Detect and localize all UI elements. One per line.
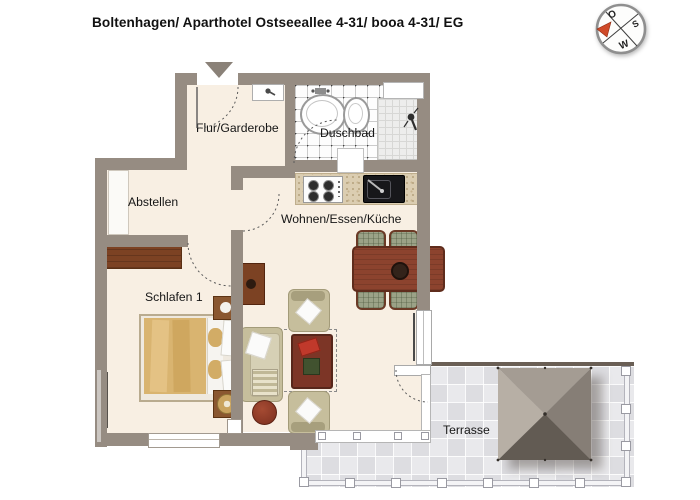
blanket-fold <box>150 320 170 393</box>
compass-east-label: O <box>607 8 619 21</box>
wall <box>175 73 187 170</box>
bedroom-door-gap <box>188 235 231 247</box>
curtain-rail <box>413 313 415 361</box>
room-label-wohnen: Wohnen/Essen/Küche <box>281 212 401 226</box>
storage-closet <box>108 170 129 235</box>
railing-post <box>575 478 585 488</box>
bed <box>139 314 236 402</box>
armchair <box>288 289 330 332</box>
cabinet-knob <box>246 279 256 289</box>
frame-post <box>421 432 429 440</box>
wall-junction <box>227 419 242 434</box>
bathroom-shelf <box>383 82 424 99</box>
railing-post <box>621 441 631 451</box>
hall-floor-lower <box>187 166 231 235</box>
frame-post <box>353 432 361 440</box>
bathroom-sink-basin <box>306 100 338 127</box>
compass-rose: O S W <box>597 5 645 53</box>
armchair-pillow <box>295 298 322 325</box>
burner <box>323 191 334 202</box>
armchair <box>288 391 330 434</box>
bathroom-door <box>337 148 364 173</box>
window-mullion <box>423 311 424 364</box>
armchair-pillow <box>295 397 322 424</box>
floor-plan: Boltenhagen/ Aparthotel Ostseeallee 4-31… <box>0 0 700 500</box>
railing-post <box>299 477 309 487</box>
wall <box>231 230 243 433</box>
railing-post <box>621 477 631 487</box>
dining-table <box>352 246 445 292</box>
wall <box>362 160 418 172</box>
glass-wall-south <box>315 430 431 443</box>
living-window-east <box>416 310 432 365</box>
wall <box>107 235 188 247</box>
sofa <box>240 327 283 402</box>
railing-post <box>621 366 631 376</box>
burner <box>323 180 334 191</box>
compass-north-needle <box>597 22 611 37</box>
wall <box>417 73 430 312</box>
burner <box>308 180 319 191</box>
railing-post <box>437 478 447 488</box>
toilet-bowl <box>348 103 363 124</box>
page-title: Boltenhagen/ Aparthotel Ostseeallee 4-31… <box>92 15 463 30</box>
ottoman <box>252 400 277 425</box>
living-door-gap <box>231 190 243 230</box>
wall <box>290 433 318 450</box>
stove-controls <box>338 181 340 197</box>
stove <box>303 176 343 203</box>
wall <box>285 85 295 172</box>
room-label-abstellen: Abstellen <box>128 195 178 209</box>
room-label-terrasse: Terrasse <box>443 423 490 437</box>
bedroom-window <box>148 433 220 448</box>
shower-area <box>377 98 419 160</box>
table-centerpiece <box>391 262 409 280</box>
compass-west-label: W <box>618 38 631 52</box>
railing-post <box>483 478 493 488</box>
wall <box>285 160 337 172</box>
frame-post <box>394 432 402 440</box>
table-decor-green <box>303 358 320 375</box>
burner <box>308 191 319 202</box>
sink-basin <box>367 180 391 199</box>
illustration-watermark <box>97 370 101 442</box>
terrace-railing-right <box>624 366 630 483</box>
wall <box>95 158 187 170</box>
window-mullion <box>149 439 219 440</box>
coffee-table <box>291 334 333 389</box>
room-label-schlafen: Schlafen 1 <box>145 290 203 304</box>
frame-post <box>318 432 326 440</box>
compass-circle <box>597 5 645 53</box>
room-label-duschbad: Duschbad <box>320 126 375 140</box>
railing-post <box>529 478 539 488</box>
railing-post <box>345 478 355 488</box>
compass-south-label: S <box>630 18 640 30</box>
railing-post <box>391 478 401 488</box>
sofa-throw <box>252 369 278 396</box>
railing-post <box>621 404 631 414</box>
entry-arrow-icon <box>205 62 233 78</box>
blanket-fold <box>172 320 190 392</box>
room-label-flur: Flur/Garderobe <box>196 121 279 135</box>
nightstand-lamp <box>220 302 231 313</box>
terrace-edge <box>430 362 634 366</box>
kitchen-sink <box>363 175 405 203</box>
table-decor-red <box>297 337 320 356</box>
entry-basin <box>252 84 284 101</box>
